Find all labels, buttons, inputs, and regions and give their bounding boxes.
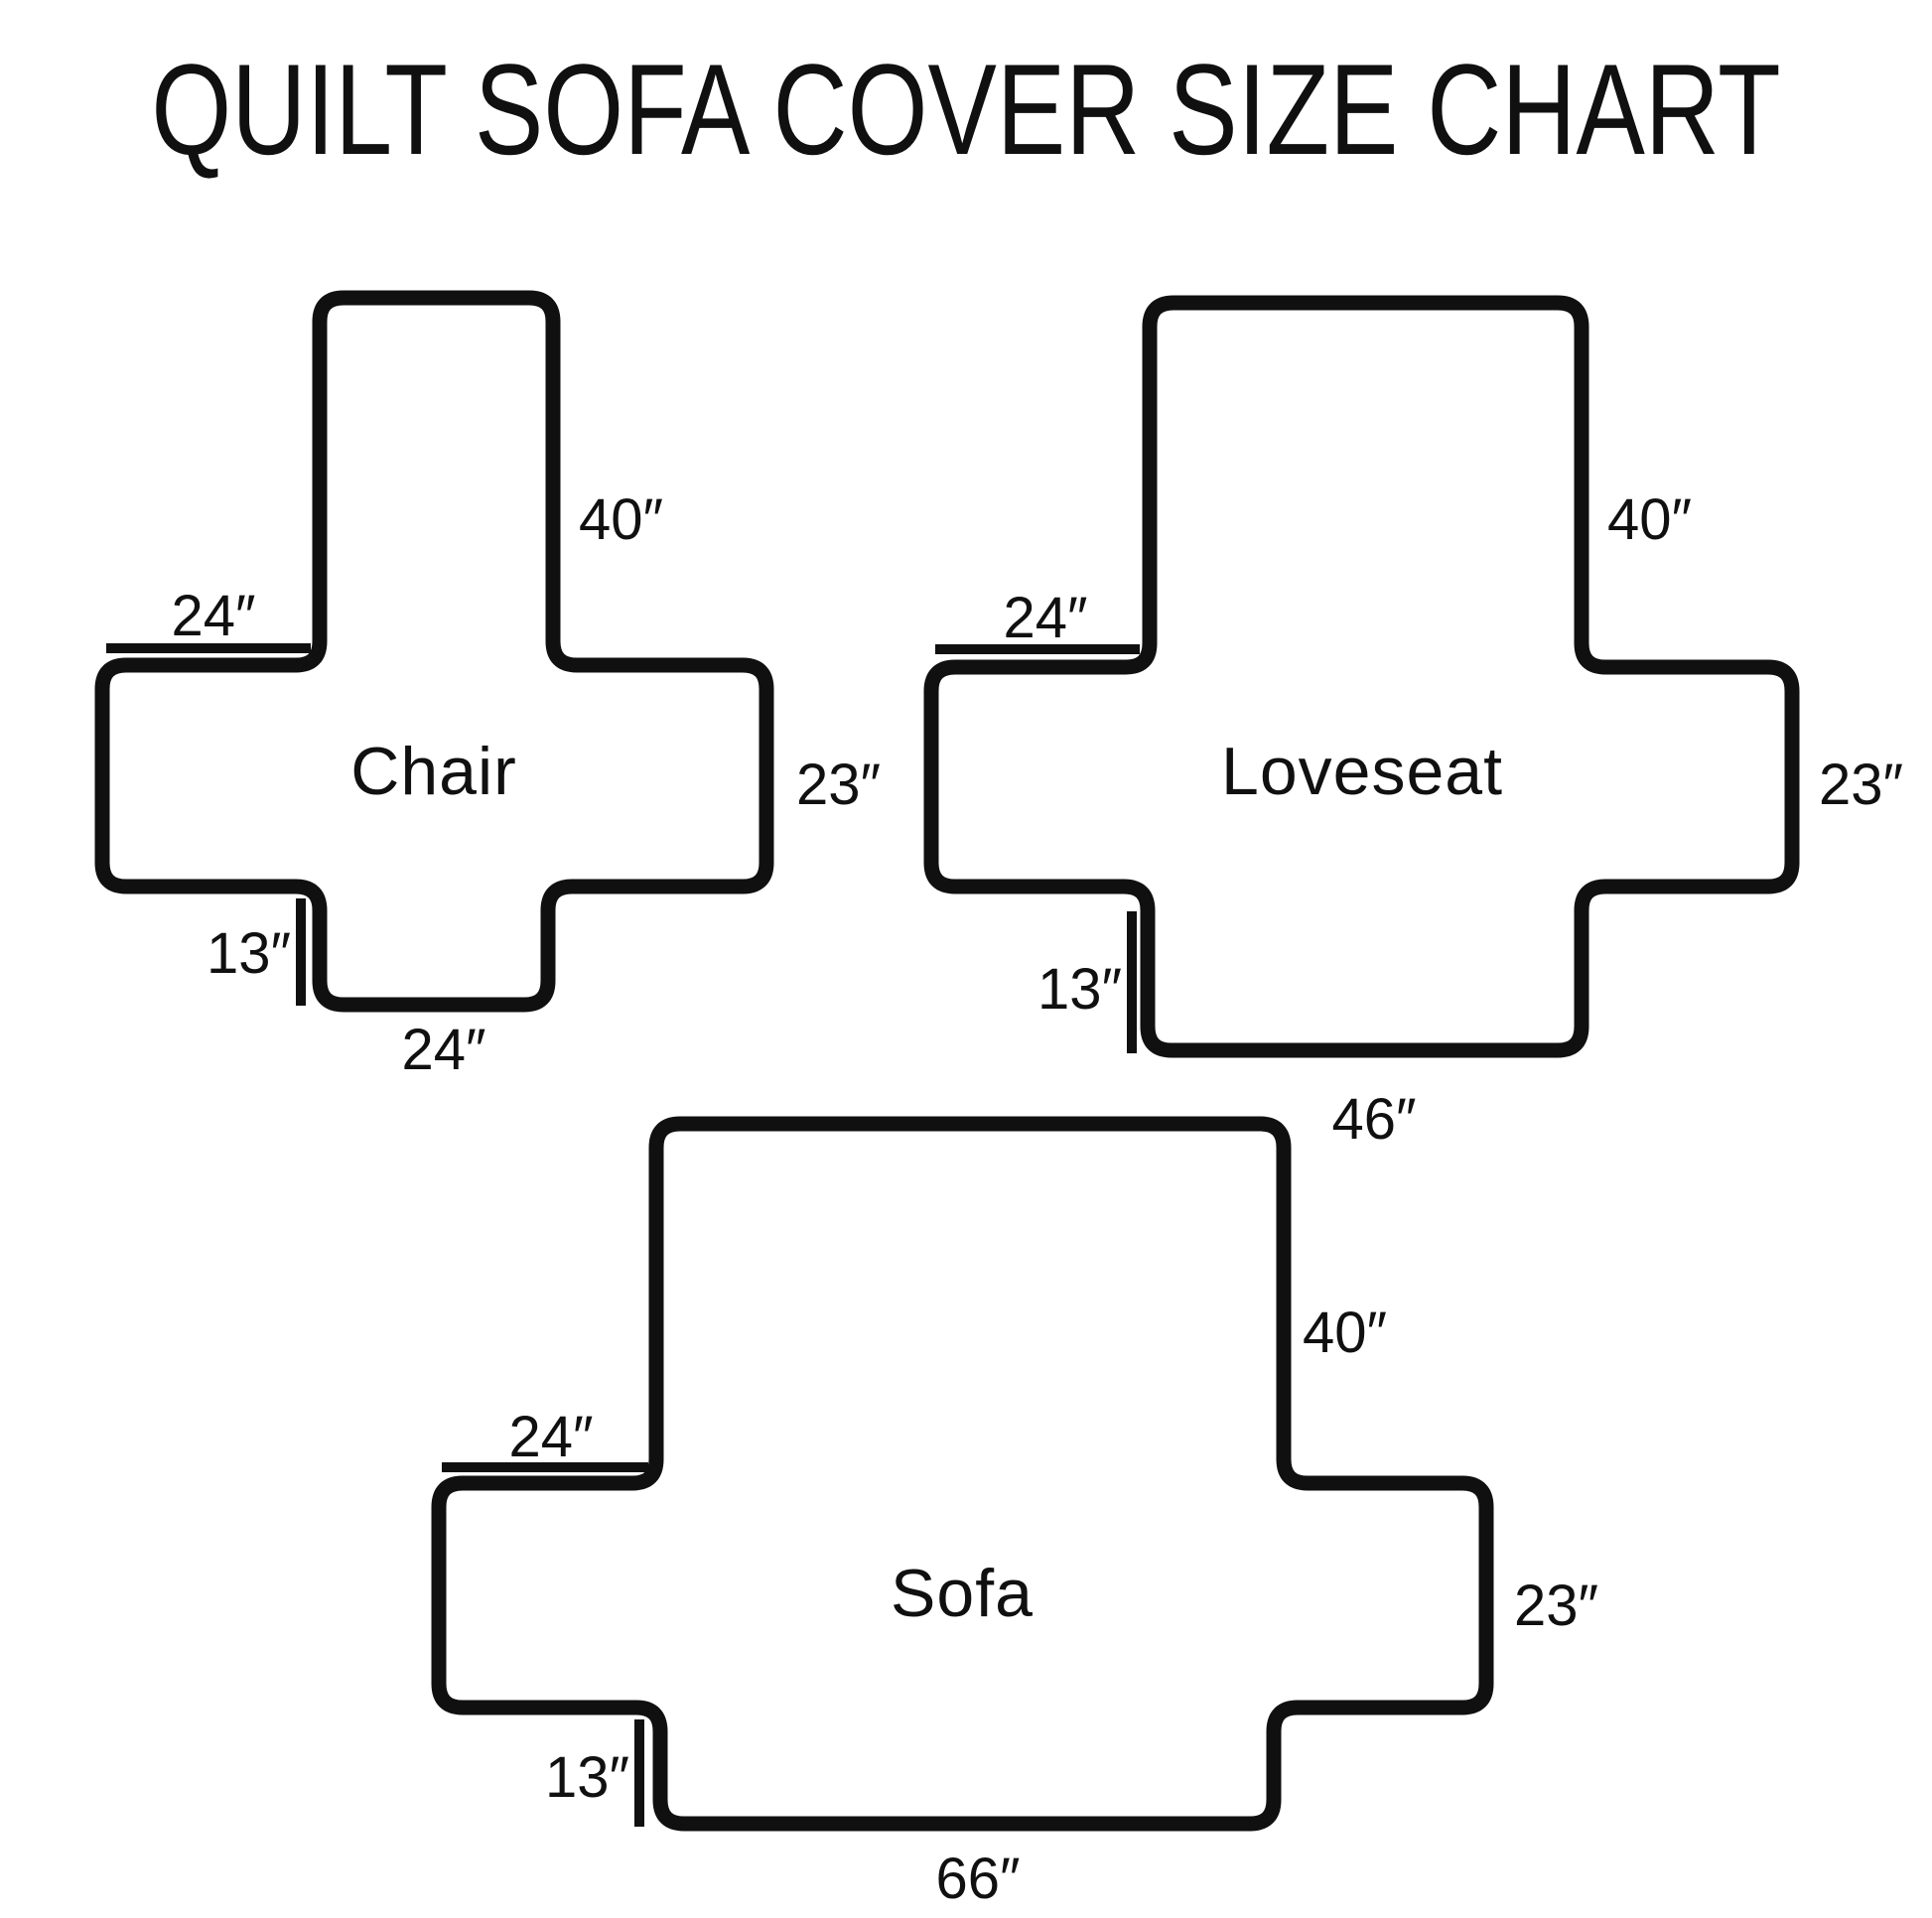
loveseat-cover-outline (931, 303, 1792, 1050)
size-chart-page: QUILT SOFA COVER SIZE CHART 40″ 24″ 23″ … (0, 0, 1932, 1918)
sofa-side-height-label: 23″ (1514, 1574, 1598, 1638)
loveseat-name-label: Loveseat (1221, 734, 1503, 809)
sofa-name-label: Sofa (891, 1556, 1034, 1631)
chair-front-width-label: 24″ (401, 1018, 485, 1082)
chair-arm-top-width-label: 24″ (171, 584, 255, 648)
loveseat-front-width-label: 46″ (1331, 1087, 1416, 1152)
sofa-cover-outline (439, 1124, 1486, 1824)
loveseat-diagram: 40″ 24″ 23″ 13″ 46″ Loveseat (931, 303, 1903, 1152)
chair-skirt-drop-label: 13″ (207, 921, 291, 986)
loveseat-arm-top-width-label: 24″ (1003, 586, 1087, 650)
page-title: QUILT SOFA COVER SIZE CHART (151, 37, 1780, 182)
sofa-arm-top-width-label: 24″ (508, 1405, 593, 1469)
loveseat-back-height-label: 40″ (1607, 487, 1692, 552)
chair-side-height-label: 23″ (796, 753, 881, 817)
size-chart-canvas: QUILT SOFA COVER SIZE CHART 40″ 24″ 23″ … (0, 0, 1932, 1918)
loveseat-side-height-label: 23″ (1819, 753, 1903, 817)
chair-back-height-label: 40″ (579, 487, 663, 552)
chair-name-label: Chair (350, 734, 517, 809)
sofa-front-width-label: 66″ (935, 1847, 1020, 1911)
sofa-skirt-drop-label: 13″ (545, 1745, 629, 1810)
loveseat-skirt-drop-label: 13″ (1037, 957, 1122, 1022)
sofa-diagram: 40″ 24″ 23″ 13″ 66″ Sofa (439, 1124, 1598, 1911)
sofa-back-height-label: 40″ (1303, 1301, 1387, 1365)
chair-diagram: 40″ 24″ 23″ 13″ 24″ Chair (102, 298, 881, 1082)
